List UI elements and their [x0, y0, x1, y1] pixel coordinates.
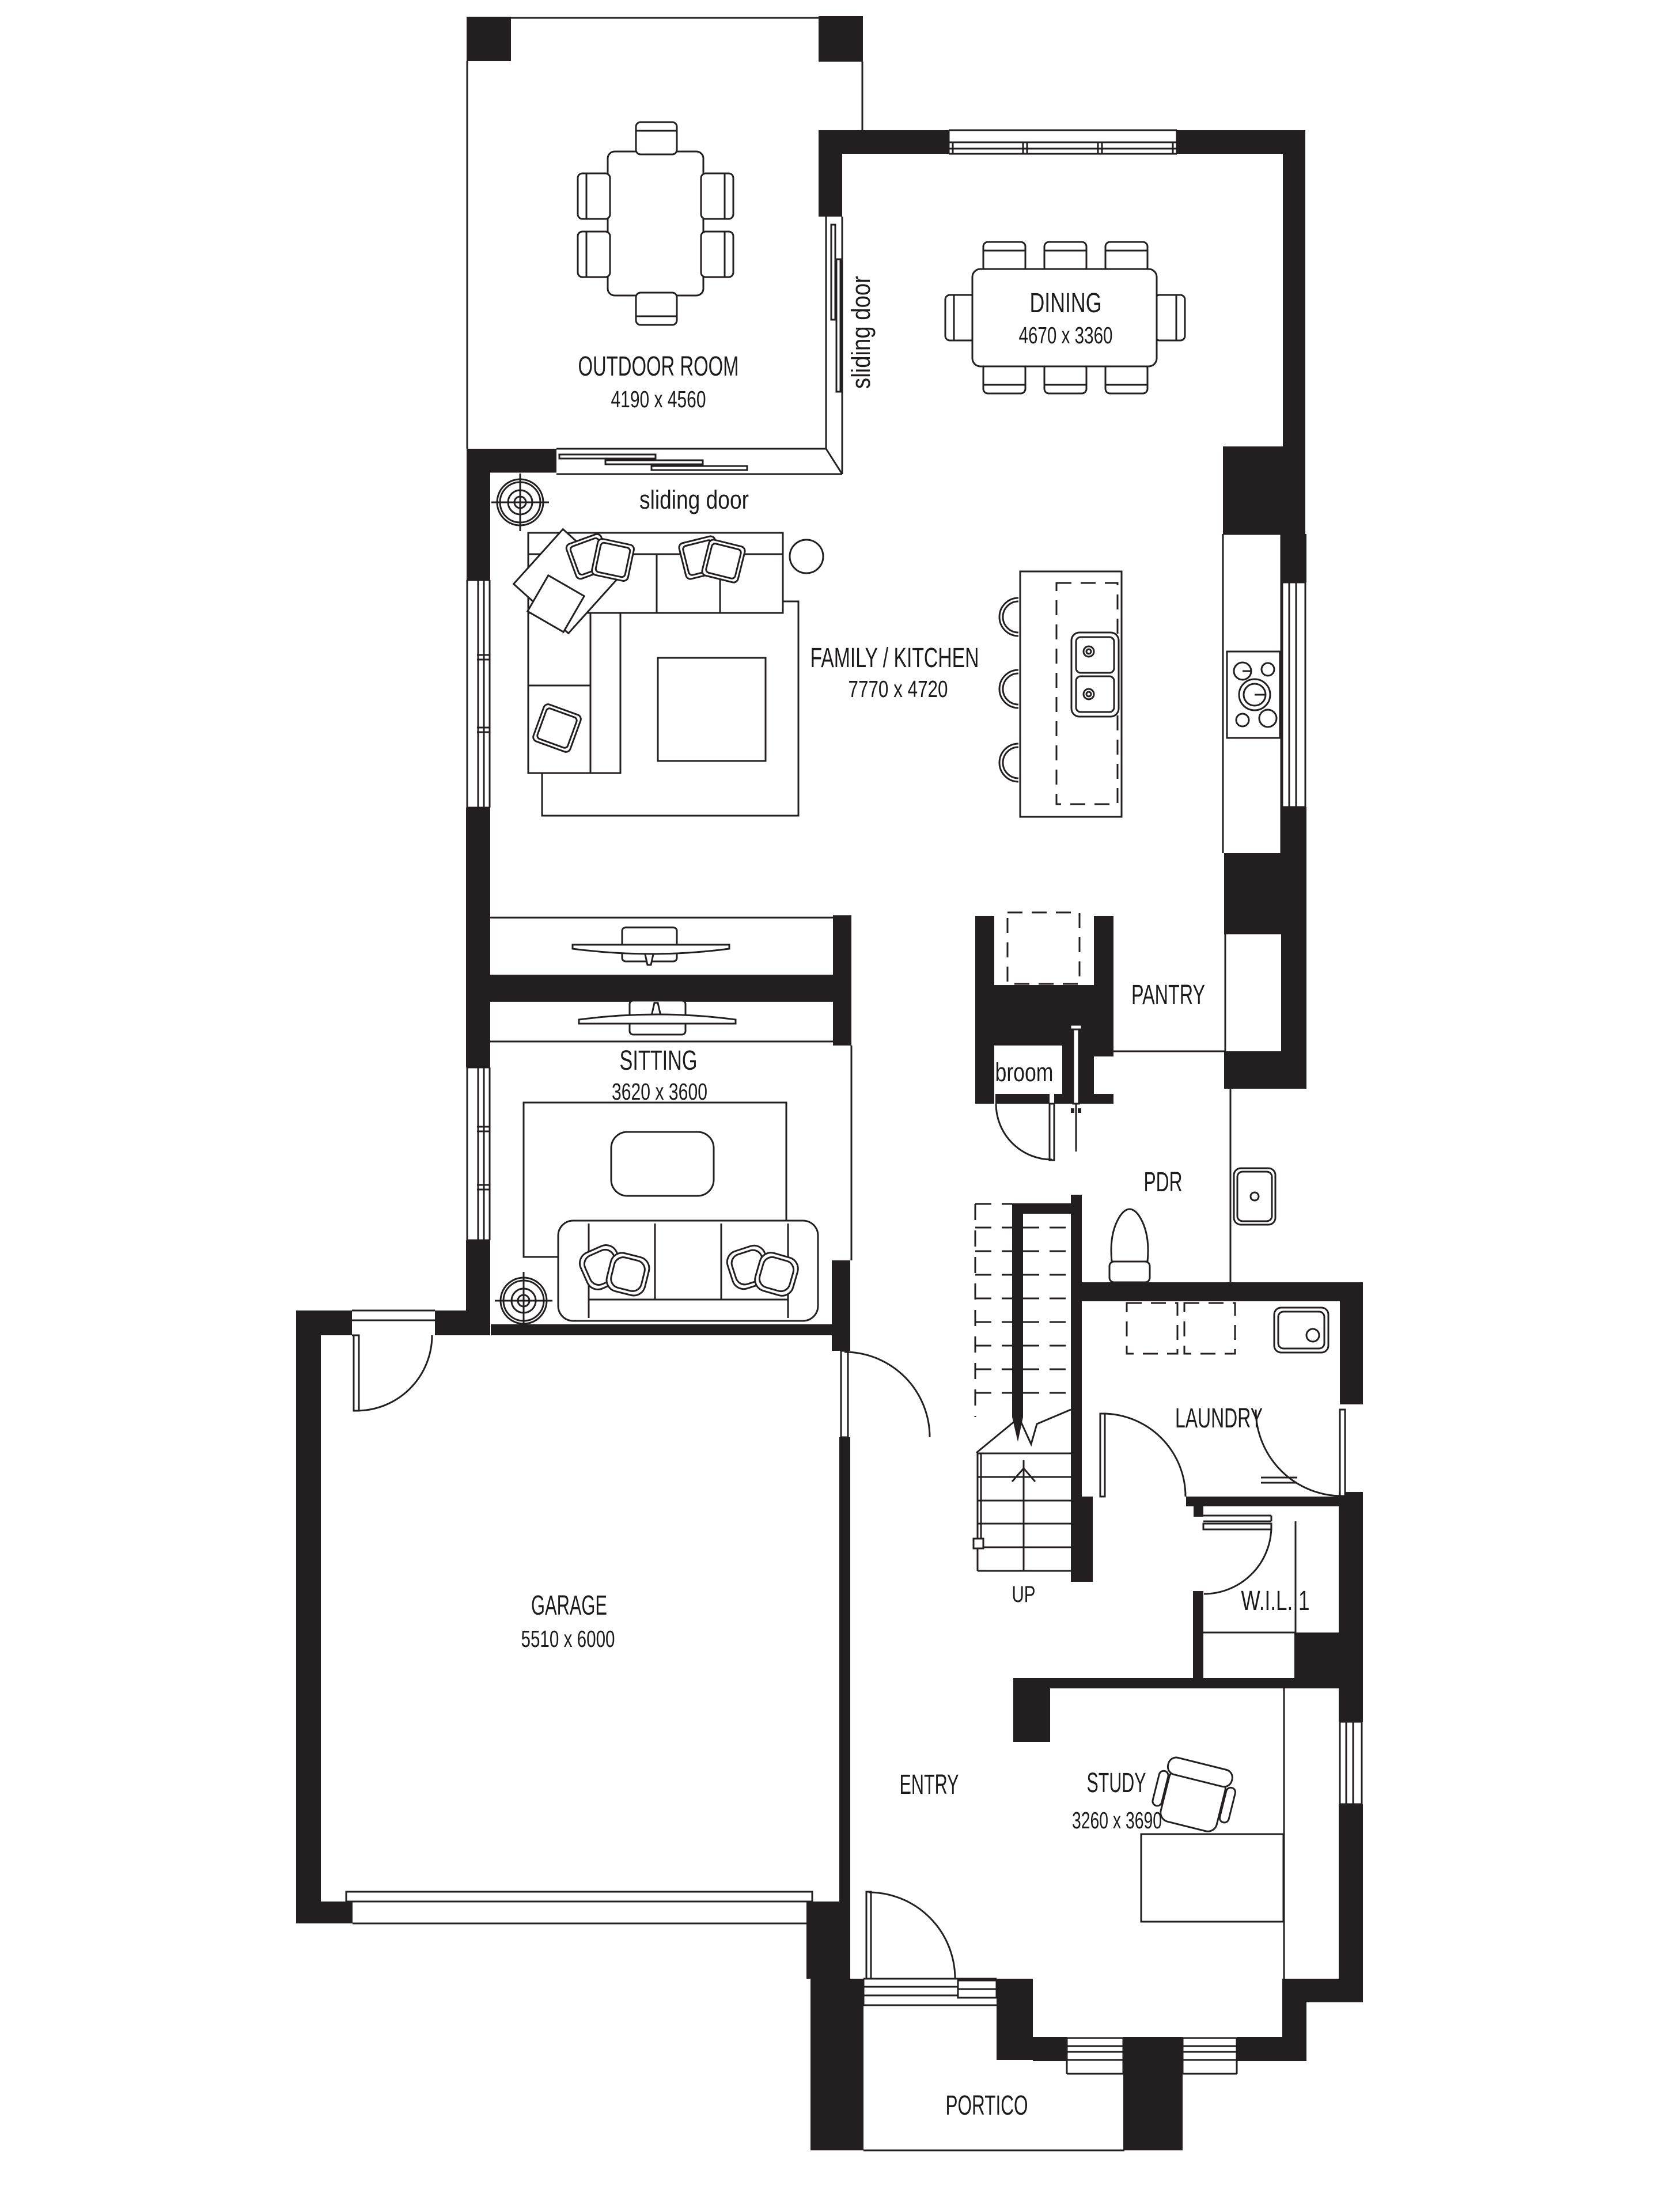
svg-text:5510 x 6000: 5510 x 6000 — [521, 1626, 615, 1652]
svg-text:3620 x 3600: 3620 x 3600 — [612, 1078, 707, 1105]
svg-text:DINING: DINING — [1030, 288, 1102, 319]
svg-text:GARAGE: GARAGE — [531, 1590, 607, 1621]
svg-text:PANTRY: PANTRY — [1131, 980, 1205, 1010]
svg-text:OUTDOOR ROOM: OUTDOOR ROOM — [578, 351, 739, 382]
svg-text:broom: broom — [995, 1058, 1054, 1087]
svg-text:3260 x 3690: 3260 x 3690 — [1072, 1807, 1162, 1834]
svg-text:sliding door: sliding door — [639, 485, 749, 514]
svg-text:7770 x 4720: 7770 x 4720 — [849, 676, 948, 702]
svg-text:STUDY: STUDY — [1087, 1768, 1146, 1798]
svg-text:W.I.L. 1: W.I.L. 1 — [1241, 1586, 1310, 1616]
svg-text:LAUNDRY: LAUNDRY — [1175, 1403, 1263, 1434]
svg-text:FAMILY / KITCHEN: FAMILY / KITCHEN — [810, 643, 979, 673]
svg-text:UP: UP — [1012, 1582, 1036, 1607]
svg-text:sliding door: sliding door — [846, 276, 876, 389]
svg-text:ENTRY: ENTRY — [900, 1770, 959, 1800]
svg-text:PDR: PDR — [1144, 1167, 1183, 1198]
svg-text:4190 x 4560: 4190 x 4560 — [611, 386, 706, 412]
svg-text:PORTICO: PORTICO — [946, 2090, 1028, 2121]
svg-text:4670 x 3360: 4670 x 3360 — [1019, 322, 1113, 349]
svg-text:SITTING: SITTING — [620, 1046, 698, 1076]
